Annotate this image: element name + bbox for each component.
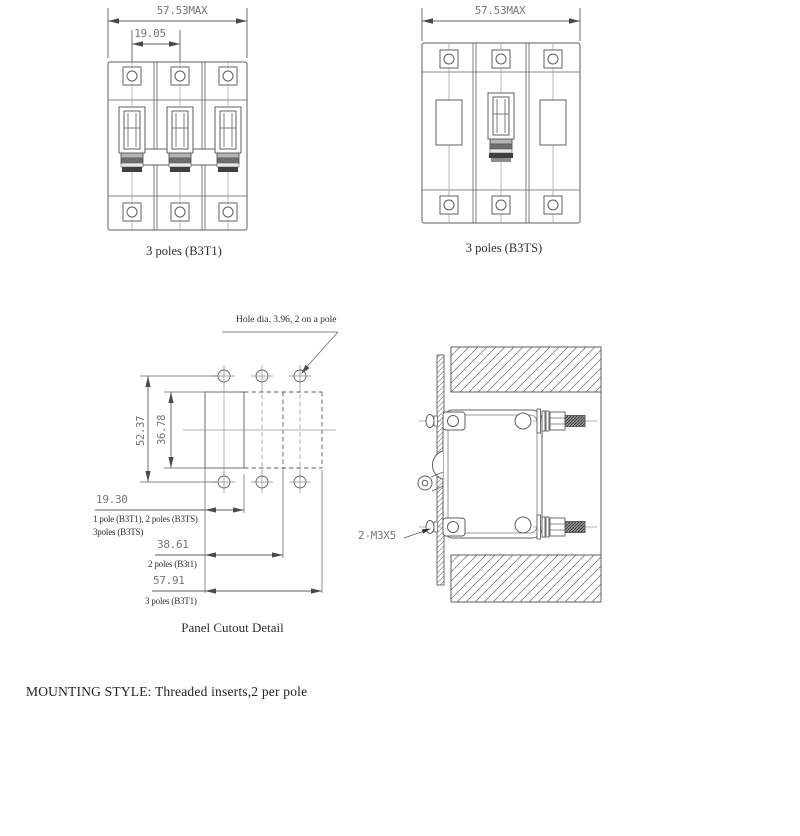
b3t1-overall-width-value: 57.53MAX (132, 4, 232, 17)
cutout-width1-label-line1: 1 pole (B3T1), 2 poles (B3TS) (93, 514, 198, 524)
b3t1-top-terminals (123, 67, 237, 85)
b3t1-caption: 3 poles (B3T1) (129, 244, 239, 259)
cutout-dashed-opening (244, 387, 322, 471)
b3ts-front-view-drawing (412, 0, 587, 235)
panel-cutout-caption: Panel Cutout Detail (160, 620, 305, 636)
cutout-width3-value: 57.91 (153, 574, 185, 587)
technical-drawing-page: 57.53MAX 19.05 3 poles (B3T1) (0, 0, 800, 836)
mounting-style-note: MOUNTING STYLE: Threaded inserts,2 per p… (26, 684, 307, 700)
b3t1-front-view-drawing (95, 0, 265, 235)
cutout-width2-value: 38.61 (157, 538, 189, 551)
cutout-height-inner-value: 36.78 (156, 415, 168, 445)
terminal-stud-bottom (533, 515, 597, 539)
panel-cutout-drawing (85, 310, 345, 610)
cutout-width1-value: 19.30 (96, 493, 128, 506)
cutout-width3-label: 3 poles (B3T1) (145, 596, 197, 606)
b3t1-toggle-handles (119, 107, 241, 172)
width-dimension-38-61 (155, 552, 283, 557)
width-dimension-19-30 (95, 507, 244, 512)
cutout-width2-label: 2 poles (B3t1) (148, 559, 197, 569)
b3ts-overall-width-value: 57.53MAX (450, 4, 550, 17)
b3t1-bottom-terminals (123, 203, 237, 221)
b3ts-toggle-handle (488, 93, 514, 162)
b3ts-top-terminals (440, 50, 562, 68)
side-mounting-drawing (355, 335, 605, 610)
b3ts-bottom-terminals (440, 196, 562, 214)
terminal-stud-top (533, 409, 597, 433)
width-dimension-57-91 (152, 588, 322, 593)
b3t1-pole-pitch-value: 19.05 (130, 27, 170, 40)
screw-note-leader (404, 529, 431, 539)
extension-lines (205, 468, 322, 593)
screw-spec-label: 2-M3X5 (358, 529, 396, 542)
cutout-width1-label-line2: 3poles (B3TS) (93, 527, 143, 537)
hole-diameter-note: Hole dia. 3.96, 2 on a pole (236, 315, 337, 325)
hole-note-leader (222, 332, 338, 374)
breaker-body-side (443, 410, 542, 538)
b3ts-caption: 3 poles (B3TS) (444, 241, 564, 256)
cutout-height-outer-value: 52.37 (135, 416, 147, 446)
